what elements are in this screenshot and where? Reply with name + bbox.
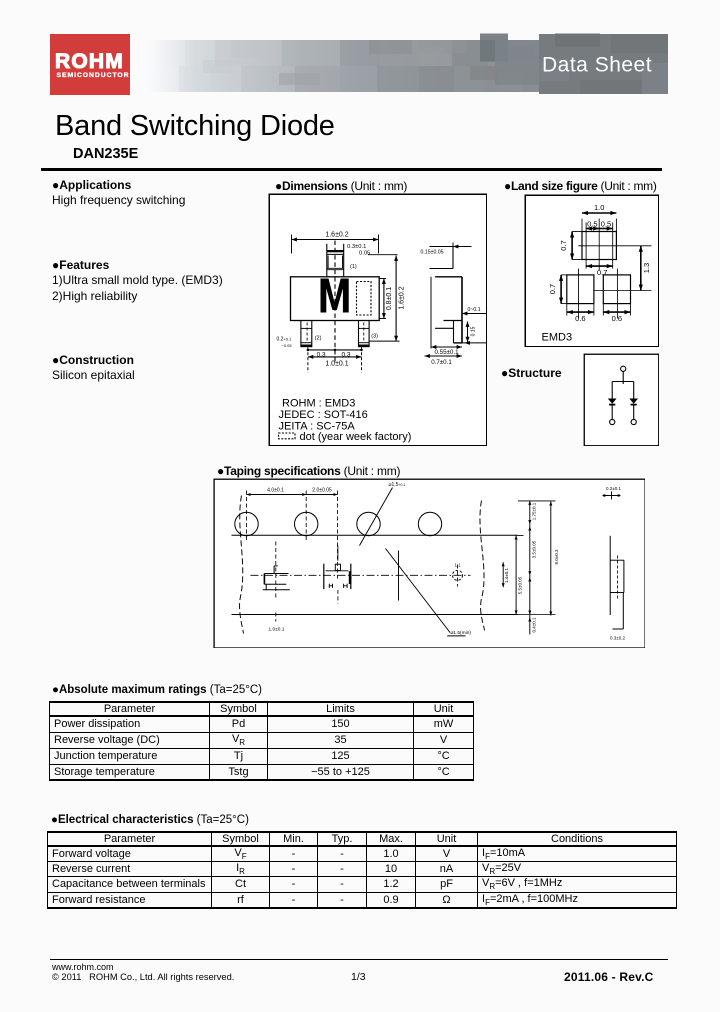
svg-text:1.4±0.1: 1.4±0.1 (504, 568, 509, 583)
svg-text:0.7±0.1: 0.7±0.1 (431, 359, 452, 366)
svg-text:Data Sheet: Data Sheet (542, 54, 652, 77)
svg-text:dot (year week factory): dot (year week factory) (300, 431, 412, 443)
svg-text:0.3±0.2: 0.3±0.2 (610, 636, 625, 641)
svg-text:0.7: 0.7 (548, 284, 557, 294)
svg-text:EMD3: EMD3 (542, 332, 573, 344)
svg-text:0.3±0.1: 0.3±0.1 (347, 244, 366, 250)
svg-text:(2): (2) (315, 336, 322, 342)
svg-text:0.3: 0.3 (317, 352, 326, 359)
svg-text:1.0: 1.0 (594, 203, 604, 212)
svg-text:−0.05: −0.05 (282, 343, 293, 348)
svg-text:0.2±0.1: 0.2±0.1 (606, 486, 621, 491)
svg-text:2.0±0.05: 2.0±0.05 (312, 488, 332, 494)
svg-text:0.05: 0.05 (359, 251, 370, 257)
svg-text:1.1: 1.1 (455, 563, 461, 568)
svg-text:JEDEC : SOT-416: JEDEC : SOT-416 (279, 409, 368, 421)
svg-text:4.0±0.1: 4.0±0.1 (267, 488, 284, 494)
svg-text:0.7: 0.7 (597, 268, 607, 277)
svg-text:1.6±0.2: 1.6±0.2 (399, 286, 406, 309)
svg-text:ROHM : EMD3: ROHM : EMD3 (282, 398, 355, 410)
svg-text:1.6±0.2: 1.6±0.2 (325, 232, 348, 239)
svg-text:0.5: 0.5 (601, 219, 611, 228)
svg-text:8.0±0.3: 8.0±0.3 (554, 549, 559, 564)
svg-text:0.55±0.1: 0.55±0.1 (434, 349, 459, 356)
svg-text:(3): (3) (371, 334, 378, 340)
svg-text:0.6: 0.6 (612, 314, 622, 323)
svg-text:1.0±0.1: 1.0±0.1 (325, 361, 348, 368)
svg-text:0~0.1: 0~0.1 (468, 307, 481, 313)
svg-text:3.5±0.05: 3.5±0.05 (532, 540, 537, 558)
svg-text:(1): (1) (350, 264, 357, 270)
svg-text:5.5±0.05: 5.5±0.05 (518, 576, 523, 594)
svg-text:0.4±0.1: 0.4±0.1 (532, 617, 537, 632)
svg-text:1.75±0.1: 1.75±0.1 (532, 502, 537, 520)
svg-text:0.3: 0.3 (341, 352, 350, 359)
svg-text:0.15±0.05: 0.15±0.05 (421, 250, 444, 256)
svg-text:⌀1.5(min): ⌀1.5(min) (451, 630, 472, 636)
svg-text:0.8±0.1: 0.8±0.1 (386, 287, 393, 310)
svg-text:1.3: 1.3 (642, 263, 651, 273)
svg-text:0.7: 0.7 (559, 240, 568, 250)
svg-text:1.0±0.1: 1.0±0.1 (269, 627, 285, 633)
svg-text:0.15: 0.15 (471, 326, 477, 336)
svg-text:0.6: 0.6 (575, 314, 585, 323)
svg-text:0.5: 0.5 (587, 219, 597, 228)
